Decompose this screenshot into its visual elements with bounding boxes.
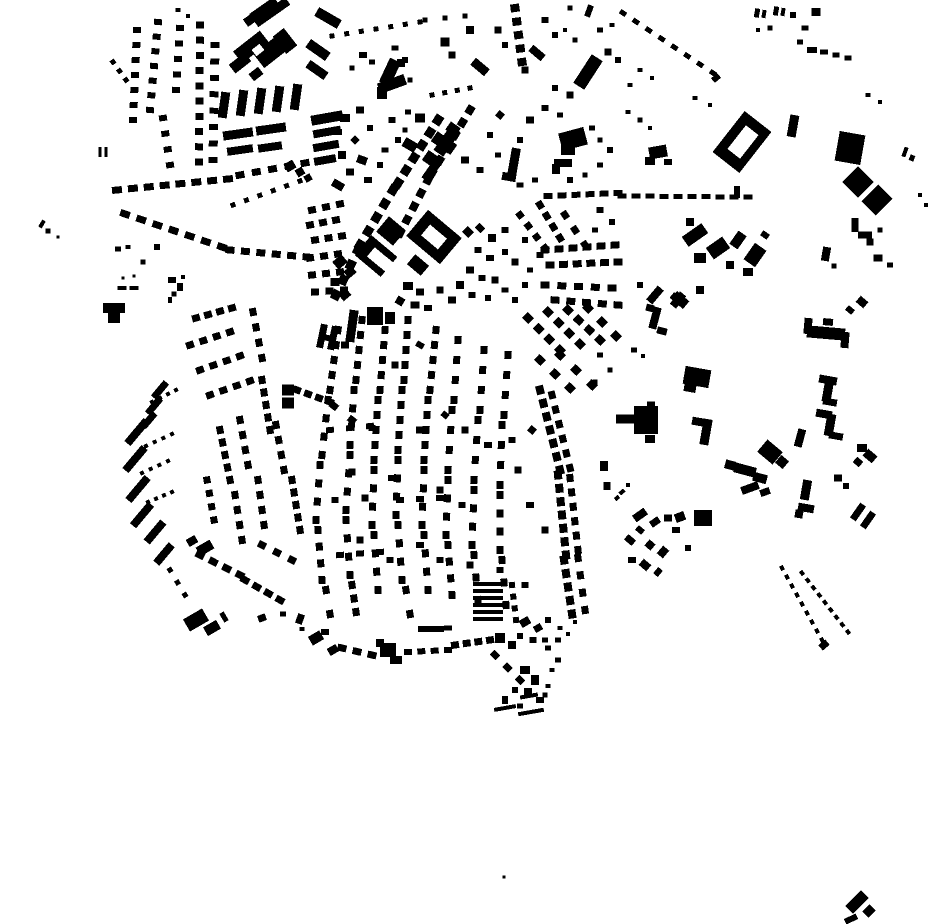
building (352, 608, 360, 617)
building (546, 684, 551, 688)
building (584, 4, 594, 17)
building (367, 125, 373, 131)
building (168, 226, 180, 236)
building (236, 521, 244, 530)
building (161, 435, 166, 440)
building (307, 206, 316, 215)
building (389, 117, 396, 123)
building (332, 497, 339, 503)
building (418, 626, 444, 632)
building (450, 396, 458, 404)
building (456, 281, 464, 289)
building (503, 876, 506, 879)
building (773, 6, 779, 16)
building (305, 221, 314, 229)
building (600, 461, 608, 471)
building (346, 571, 354, 579)
building (352, 647, 362, 656)
building (256, 491, 264, 500)
building (555, 638, 561, 643)
building (370, 456, 378, 464)
building (807, 325, 846, 340)
building (367, 651, 377, 660)
building (790, 12, 796, 18)
building (258, 375, 266, 384)
building (497, 461, 504, 469)
building (768, 26, 773, 31)
building (563, 327, 575, 339)
building (469, 292, 476, 298)
building (558, 510, 567, 520)
building (406, 609, 414, 618)
building (475, 223, 486, 234)
building (210, 58, 219, 64)
building (743, 194, 752, 199)
building (394, 521, 402, 529)
building (295, 167, 306, 178)
building (596, 242, 605, 250)
building (119, 209, 131, 219)
building (498, 421, 505, 429)
building (462, 639, 471, 647)
building (495, 27, 502, 34)
building (325, 287, 333, 295)
building (600, 259, 609, 266)
building (440, 410, 449, 419)
building (377, 371, 385, 380)
building (638, 118, 643, 123)
building (515, 44, 525, 53)
building (809, 619, 815, 625)
building (141, 260, 146, 265)
building (500, 411, 508, 419)
building (610, 23, 615, 27)
building (804, 610, 810, 616)
building (226, 475, 234, 484)
building (369, 503, 376, 511)
building (583, 173, 588, 178)
building (444, 494, 451, 502)
building (760, 230, 770, 240)
building (222, 356, 232, 365)
building (200, 237, 212, 247)
building (615, 57, 621, 63)
building (490, 650, 501, 661)
building (397, 557, 405, 565)
building (474, 416, 482, 424)
building (165, 458, 170, 463)
building (346, 441, 354, 449)
building (657, 546, 670, 559)
building (470, 551, 478, 560)
building (571, 192, 580, 198)
building (394, 446, 402, 454)
building (122, 445, 147, 473)
building (398, 576, 406, 584)
building (408, 201, 419, 213)
building (282, 385, 294, 396)
building (210, 516, 218, 524)
building (173, 387, 178, 392)
building (431, 341, 439, 350)
building (218, 386, 228, 395)
building (572, 531, 580, 540)
building (324, 234, 333, 242)
building (173, 71, 181, 78)
building (467, 85, 473, 91)
building (512, 17, 522, 26)
building (818, 374, 837, 385)
building (358, 28, 364, 34)
building (346, 425, 355, 432)
building (538, 398, 548, 409)
building (566, 474, 574, 483)
building (448, 297, 456, 304)
building (376, 639, 384, 647)
building (518, 708, 544, 716)
building (726, 261, 734, 269)
building (444, 626, 452, 631)
building (442, 531, 449, 539)
building (626, 110, 631, 114)
building (292, 500, 300, 509)
building (448, 591, 456, 600)
building (799, 570, 805, 576)
building (802, 26, 809, 31)
building (701, 194, 710, 199)
building (394, 474, 401, 482)
building (453, 356, 461, 364)
building (175, 180, 186, 188)
building (635, 525, 645, 535)
building (437, 557, 444, 563)
building (733, 462, 757, 477)
building (151, 220, 163, 230)
building (562, 304, 574, 316)
building (376, 386, 384, 395)
building (159, 114, 168, 121)
building (527, 425, 537, 435)
building (686, 218, 694, 226)
building (478, 386, 486, 394)
building (495, 153, 501, 158)
building (133, 275, 136, 278)
building (346, 169, 354, 176)
building (466, 267, 474, 274)
building (251, 168, 261, 177)
building (297, 178, 303, 184)
building (174, 56, 182, 63)
building (132, 42, 140, 48)
building (706, 237, 730, 260)
building (271, 250, 281, 258)
building (448, 406, 456, 414)
building (186, 14, 190, 18)
building (574, 554, 582, 563)
building (402, 346, 410, 354)
building (370, 484, 377, 492)
building (867, 239, 874, 246)
building (568, 488, 576, 497)
building (403, 282, 413, 290)
building (402, 585, 410, 594)
building (205, 489, 213, 497)
building (581, 606, 589, 615)
building (227, 144, 254, 156)
building (122, 277, 125, 280)
building (759, 487, 771, 497)
building (321, 203, 330, 212)
building (693, 96, 698, 100)
building (484, 442, 492, 448)
building (803, 318, 812, 335)
building (447, 574, 455, 583)
building (507, 147, 521, 176)
building (408, 151, 421, 164)
building (814, 628, 820, 634)
building (130, 286, 139, 290)
building (464, 104, 475, 116)
building (417, 19, 423, 25)
building (744, 243, 767, 267)
building (597, 207, 604, 213)
building (822, 599, 828, 605)
building (236, 415, 244, 424)
building (130, 102, 138, 108)
building (562, 449, 571, 458)
building (272, 548, 282, 558)
building (673, 194, 682, 199)
building (568, 6, 573, 11)
building (344, 534, 352, 542)
building (473, 610, 503, 614)
building (780, 8, 785, 17)
building (685, 545, 691, 551)
building (512, 259, 519, 266)
building (125, 475, 150, 503)
building (215, 307, 225, 316)
building (466, 26, 474, 34)
building (260, 521, 268, 530)
building (300, 159, 310, 168)
building (835, 131, 866, 165)
building (373, 411, 381, 419)
building (532, 178, 538, 183)
building (845, 56, 852, 61)
building (634, 406, 658, 434)
building (508, 641, 516, 649)
building (502, 696, 508, 704)
building (146, 107, 155, 114)
building (542, 211, 552, 221)
building (133, 27, 141, 33)
building (314, 497, 322, 505)
building (205, 390, 215, 399)
building (645, 194, 654, 199)
building (604, 482, 611, 490)
building (555, 483, 564, 493)
building (626, 483, 630, 487)
building (449, 52, 456, 59)
building (395, 296, 406, 307)
building (369, 60, 375, 65)
building (496, 481, 503, 489)
building (429, 356, 437, 365)
building (522, 237, 528, 243)
building (659, 194, 668, 199)
building (628, 83, 633, 87)
building (561, 568, 570, 578)
building (852, 218, 859, 232)
building (515, 210, 525, 220)
building (794, 509, 803, 518)
building (461, 157, 469, 164)
building (112, 186, 123, 194)
building (573, 54, 602, 90)
building (210, 75, 219, 81)
building (535, 200, 545, 210)
building (390, 656, 402, 664)
building (563, 28, 567, 32)
building (144, 519, 167, 544)
building (219, 611, 228, 622)
building (350, 135, 360, 145)
building (203, 476, 211, 484)
building (616, 415, 634, 424)
building (567, 177, 573, 183)
building (874, 255, 883, 262)
building (473, 617, 503, 621)
building (186, 535, 199, 547)
building (515, 467, 522, 474)
building (815, 409, 832, 420)
building (377, 162, 383, 168)
building (314, 7, 342, 29)
building (477, 167, 484, 173)
building (131, 72, 139, 78)
building (370, 531, 378, 539)
building (132, 57, 140, 63)
building (545, 617, 551, 623)
building (856, 296, 869, 309)
building (311, 236, 320, 244)
building (225, 246, 235, 254)
building (373, 26, 379, 32)
building (512, 297, 518, 303)
building (542, 411, 552, 422)
building (296, 525, 304, 534)
building (536, 697, 544, 703)
building (176, 8, 181, 12)
building (492, 277, 499, 284)
building (509, 437, 516, 443)
building (598, 138, 603, 143)
building (646, 286, 664, 305)
building (729, 194, 738, 199)
building (249, 307, 257, 316)
building (715, 194, 724, 199)
building (479, 366, 487, 374)
building (196, 82, 204, 89)
building (321, 629, 329, 635)
building (467, 562, 474, 569)
building (262, 400, 270, 409)
building (223, 175, 234, 183)
building (495, 110, 505, 120)
building (511, 605, 518, 612)
building (350, 66, 355, 71)
building (628, 557, 636, 563)
building (845, 305, 855, 315)
building (649, 516, 661, 527)
building (512, 687, 518, 693)
building (306, 254, 315, 262)
building (314, 526, 322, 535)
building (526, 117, 534, 124)
building (502, 249, 508, 255)
building (270, 187, 276, 193)
building (474, 638, 483, 646)
building (542, 17, 549, 23)
building (340, 114, 350, 122)
building (624, 534, 636, 546)
building (617, 193, 626, 198)
building (191, 178, 202, 186)
building (196, 67, 204, 74)
building (517, 633, 523, 639)
building (650, 76, 654, 80)
building (235, 351, 245, 360)
building (570, 225, 580, 236)
building (257, 540, 267, 550)
building (610, 241, 619, 249)
building (497, 509, 504, 517)
building (487, 132, 493, 138)
building (161, 493, 166, 498)
building (502, 42, 508, 48)
building (761, 10, 766, 19)
building (411, 302, 420, 309)
building (236, 90, 249, 117)
building (452, 376, 460, 384)
building (223, 463, 231, 472)
building (159, 181, 170, 189)
building (129, 117, 137, 123)
building (444, 466, 452, 474)
building (552, 85, 558, 91)
building (500, 578, 508, 587)
building (559, 555, 568, 565)
building (338, 232, 347, 240)
building (548, 222, 558, 232)
building (181, 275, 185, 279)
building (740, 481, 760, 495)
building (395, 137, 401, 143)
building (334, 129, 342, 135)
building (324, 396, 332, 405)
building (631, 194, 640, 199)
building (392, 511, 399, 519)
building (345, 310, 358, 343)
building (258, 506, 266, 515)
building (359, 52, 367, 58)
building (370, 211, 383, 224)
building (225, 327, 235, 336)
building (862, 904, 875, 917)
building (416, 289, 424, 296)
building (419, 503, 426, 511)
building (223, 127, 254, 140)
